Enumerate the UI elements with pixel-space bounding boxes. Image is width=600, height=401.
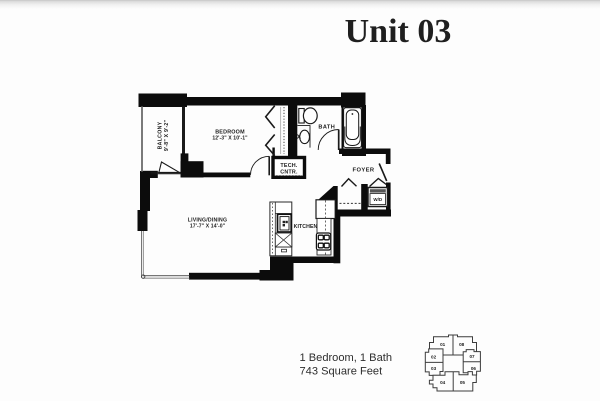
svg-text:03: 03 [431,366,437,371]
svg-text:01: 01 [440,342,446,347]
svg-text:12'-3" X 10'-1": 12'-3" X 10'-1" [212,136,248,142]
svg-text:1 Bedroom, 1 Bath: 1 Bedroom, 1 Bath [300,352,393,364]
svg-text:BALCONY: BALCONY [158,121,164,149]
svg-text:W/D: W/D [373,197,382,202]
svg-text:743 Square Feet: 743 Square Feet [300,365,383,377]
svg-text:02: 02 [431,354,437,359]
svg-text:08: 08 [459,342,465,347]
svg-text:07: 07 [469,354,475,359]
svg-text:9'-8" X 9'-2": 9'-8" X 9'-2" [164,119,170,151]
svg-text:CNTR.: CNTR. [280,170,298,176]
svg-text:BATH: BATH [318,124,335,130]
svg-text:KITCHEN: KITCHEN [294,224,318,230]
svg-text:06: 06 [471,366,477,371]
svg-text:Unit 03: Unit 03 [345,13,452,50]
svg-text:05: 05 [460,380,466,385]
svg-text:04: 04 [440,380,446,385]
svg-text:BEDROOM: BEDROOM [215,129,245,135]
svg-text:FOYER: FOYER [353,167,375,173]
svg-text:LIVING/DINING: LIVING/DINING [188,217,228,223]
svg-text:TECH.: TECH. [280,163,297,169]
svg-text:17'-7" X 14'-0": 17'-7" X 14'-0" [190,224,226,230]
